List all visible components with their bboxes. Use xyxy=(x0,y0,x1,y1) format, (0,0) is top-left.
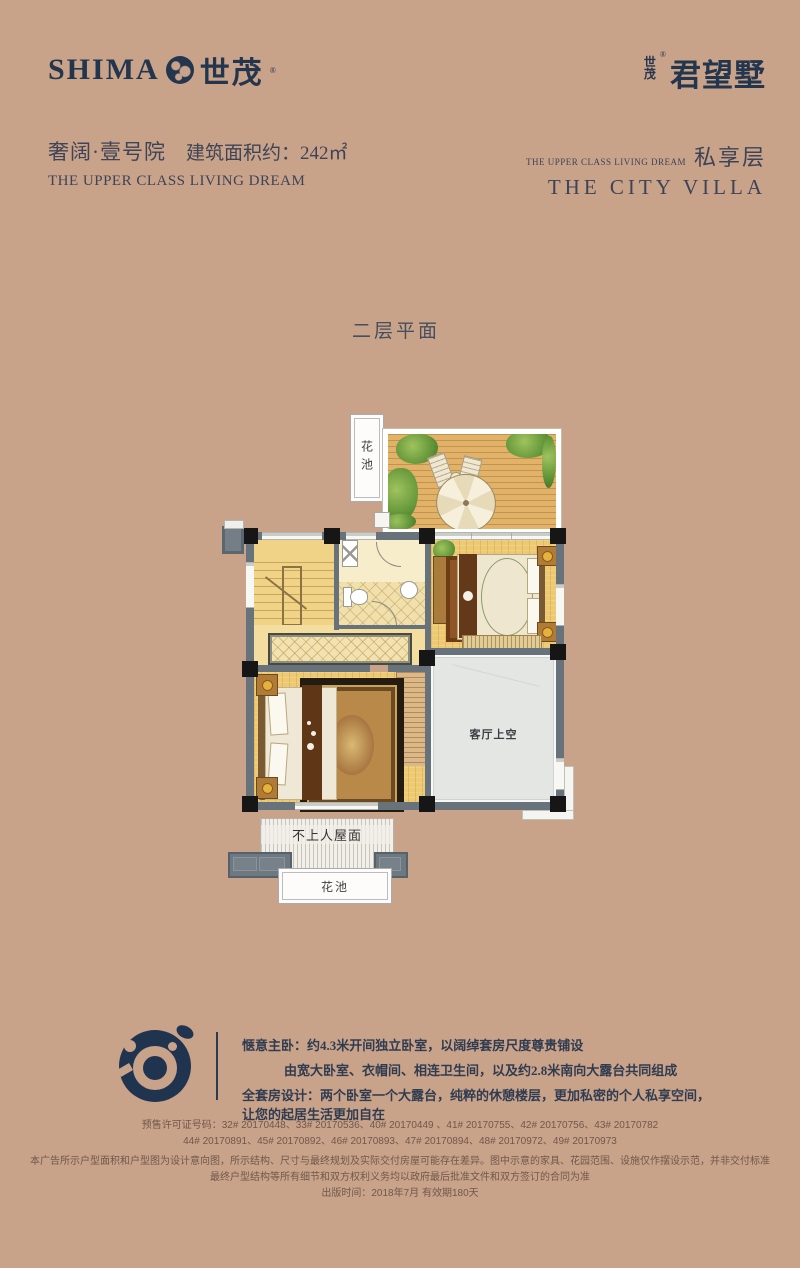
stair-hall xyxy=(254,540,334,628)
nightstand xyxy=(256,777,278,799)
brand-stack: 世 茂 xyxy=(644,56,656,80)
description-label3: 全套房设计： xyxy=(242,1088,320,1103)
shower-icon xyxy=(342,540,358,567)
terrace-deck xyxy=(388,434,556,529)
corner-block xyxy=(242,796,258,812)
corner-block xyxy=(419,650,435,666)
permits-line2: 44# 20170891、45# 20170892、46# 20170893、4… xyxy=(0,1134,800,1150)
floorplan-title: 二层平面 xyxy=(222,316,570,343)
corner-block xyxy=(419,528,435,544)
header-left-line1: 奢阔·壹号院 建筑面积约：242㎡ xyxy=(48,136,348,166)
footer-divider xyxy=(216,1032,218,1100)
corner-block xyxy=(242,528,258,544)
bed-quilt-arc xyxy=(481,558,533,636)
disclaimer-line1: 本广告所示户型面积和户型图为设计意向图，所示结构、尺寸与最终规划及实际交付房屋可… xyxy=(0,1154,800,1170)
description-line1: 惬意主卧：约4.3米开间独立卧室，以阔绰套房尺度尊贵铺设 xyxy=(242,1036,712,1055)
header-right-english-small: THE UPPER CLASS LIVING DREAM xyxy=(526,157,686,167)
poster-page: SHIMA 世茂 ® 世 茂 ® 君望墅 奢阔·壹号院 建筑面积约：242㎡ T… xyxy=(0,0,800,1268)
header-right-english-big: THE CITY VILLA xyxy=(526,175,766,200)
void-crease-line xyxy=(452,664,540,687)
flower-pool-top-box: 花池 xyxy=(350,414,384,502)
header-left-english: THE UPPER CLASS LIVING DREAM xyxy=(48,173,348,190)
floor-type-label: 私享层 xyxy=(694,140,766,172)
brand-latin-text: SHIMA xyxy=(48,53,160,87)
bed-throw xyxy=(459,554,477,638)
header-left: 奢阔·壹号院 建筑面积约：242㎡ THE UPPER CLASS LIVING… xyxy=(48,136,348,190)
bed-throw-decor xyxy=(311,731,316,736)
corner-block xyxy=(550,644,566,660)
living-void-label: 客厅上空 xyxy=(431,726,556,742)
planter-cell xyxy=(233,857,257,871)
wall-master-north xyxy=(246,665,370,672)
disclaimer-line2: 最终户型结构等所有细节和双方权利义务均以政府最后批准文件和双方签订的合同为准 xyxy=(0,1170,800,1186)
bed-throw-decor xyxy=(307,743,314,750)
nightstand xyxy=(256,674,278,696)
umbrella-pole xyxy=(462,499,470,507)
brand-cn-text: 世茂 xyxy=(200,48,264,92)
corner-block xyxy=(550,796,566,812)
brand-shimao: SHIMA 世茂 ® xyxy=(48,48,276,92)
console-table xyxy=(433,556,447,624)
globe-icon xyxy=(166,56,194,84)
plant-icon xyxy=(388,514,416,529)
wall-bath-south xyxy=(334,625,425,629)
description-text1: 约4.3米开间独立卧室，以阔绰套房尺度尊贵铺设 xyxy=(307,1038,583,1053)
living-void: 客厅上空 xyxy=(431,655,556,802)
wall-bath-west xyxy=(334,538,339,630)
nightstand xyxy=(537,546,557,566)
bay-box-cap xyxy=(224,520,244,529)
roof-label: 不上人屋面 xyxy=(261,825,393,844)
terrace-sliding-door xyxy=(431,532,551,540)
balcony-edge-horizontal xyxy=(522,810,574,820)
flower-pool-top-label: 花池 xyxy=(359,440,376,476)
wall-closet-void xyxy=(425,655,431,802)
window xyxy=(346,532,376,540)
bed-throw-decor xyxy=(307,721,311,725)
wall-bedroom-south xyxy=(431,648,564,655)
area-label: 建筑面积约：242㎡ xyxy=(186,138,348,165)
sink-icon xyxy=(400,581,418,599)
description-line2: 由宽大卧室、衣帽间、相连卫生间，以及约2.8米南向大露台共同组成 xyxy=(242,1061,712,1080)
cloud-emblem-icon xyxy=(116,1026,194,1104)
corner-block xyxy=(550,528,566,544)
bed-pillow xyxy=(268,692,289,735)
window xyxy=(556,584,564,626)
emblem-center-dot xyxy=(143,1056,167,1080)
wall-bedroom-separator xyxy=(425,532,431,658)
runner-rug xyxy=(268,633,412,665)
description-block: 惬意主卧：约4.3米开间独立卧室，以阔绰套房尺度尊贵铺设 由宽大卧室、衣帽间、相… xyxy=(242,1036,712,1130)
product-title: 奢阔·壹号院 xyxy=(48,136,166,166)
corner-block xyxy=(242,661,258,677)
bay-box xyxy=(222,526,244,554)
brand-name-text: 君望墅 xyxy=(670,50,766,95)
bed-throw xyxy=(302,685,322,800)
balcony-door xyxy=(556,758,564,790)
registered-mark: ® xyxy=(270,66,276,75)
emblem-curl xyxy=(124,1040,136,1052)
wall-master-north2 xyxy=(388,665,425,672)
window xyxy=(246,562,254,608)
bed-throw-decor xyxy=(463,591,473,601)
bed-north xyxy=(451,554,545,638)
window xyxy=(262,532,322,540)
corner-block xyxy=(324,528,340,544)
floorplan: 花池 下 xyxy=(222,406,570,918)
emblem-curl xyxy=(168,1042,177,1051)
flower-pool-bottom-label: 花池 xyxy=(321,878,349,895)
header-right-line1: THE UPPER CLASS LIVING DREAM 私享层 xyxy=(526,140,766,172)
publish-line: 出版时间：2018年7月 有效期180天 xyxy=(0,1186,800,1202)
utility-box xyxy=(374,512,390,528)
toilet-icon xyxy=(350,589,368,605)
window xyxy=(295,802,378,810)
permits-line1: 预售许可证号码：32# 20170448、33# 20170536、40# 20… xyxy=(0,1118,800,1134)
header-right: THE UPPER CLASS LIVING DREAM 私享层 THE CIT… xyxy=(526,140,766,200)
wall-south xyxy=(246,802,564,810)
brand-junwangshu: 世 茂 ® 君望墅 xyxy=(644,50,766,95)
terrace xyxy=(382,428,562,535)
corner-block xyxy=(419,796,435,812)
legal-block: 预售许可证号码：32# 20170448、33# 20170536、40# 20… xyxy=(0,1118,800,1202)
brand-stack-bottom: 茂 xyxy=(644,68,656,80)
flower-pool-bottom-box: 花池 xyxy=(278,868,392,904)
plant-icon xyxy=(542,436,556,488)
description-label1: 惬意主卧： xyxy=(242,1038,307,1053)
registered-mark: ® xyxy=(660,50,666,59)
